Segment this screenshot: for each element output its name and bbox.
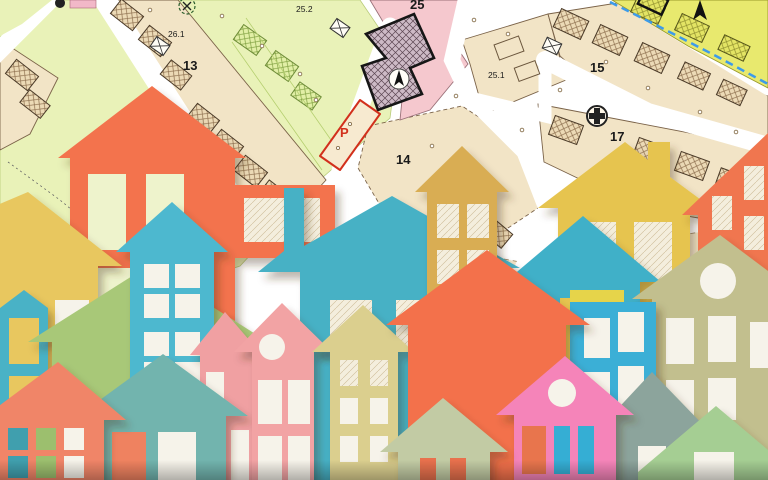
plus-circle-icon (587, 106, 607, 126)
window (750, 322, 768, 368)
scene-canvas: 25.2 26.1 13 25 25.1 15 17 14 P (0, 0, 768, 480)
parcel-label-14: 14 (396, 152, 411, 167)
window (666, 318, 694, 364)
window (288, 380, 310, 424)
pink-strip-topleft (70, 0, 96, 8)
parcel-label-25-2: 25.2 (296, 4, 313, 14)
window (370, 360, 388, 386)
window (712, 196, 732, 230)
window (437, 204, 459, 238)
window (88, 174, 126, 250)
bottom-edge-shadow (0, 460, 768, 480)
parcel-label-17: 17 (610, 129, 624, 144)
parking-label: P (340, 125, 349, 140)
window (708, 316, 736, 362)
window (8, 428, 28, 450)
window (370, 398, 388, 424)
window (618, 312, 644, 352)
paper-houses-over-zoning-map: 25.2 26.1 13 25 25.1 15 17 14 P (0, 0, 768, 480)
parcel-label-15: 15 (590, 60, 604, 75)
window (340, 398, 358, 424)
parcel-label-25-1: 25.1 (488, 70, 505, 80)
window (258, 380, 282, 424)
window (744, 166, 764, 200)
parcel-label-25: 25 (410, 0, 424, 12)
window (36, 428, 56, 450)
window (340, 360, 358, 386)
parcel-label-26-1: 26.1 (168, 29, 185, 39)
window (467, 204, 489, 238)
parcel-label-13: 13 (183, 58, 197, 73)
circle-window (700, 263, 736, 299)
circle-window (259, 334, 285, 360)
window-mullion (144, 288, 200, 294)
circle-window (548, 379, 576, 407)
window (340, 436, 358, 462)
window (244, 198, 320, 242)
window (64, 428, 84, 450)
window (744, 216, 764, 250)
